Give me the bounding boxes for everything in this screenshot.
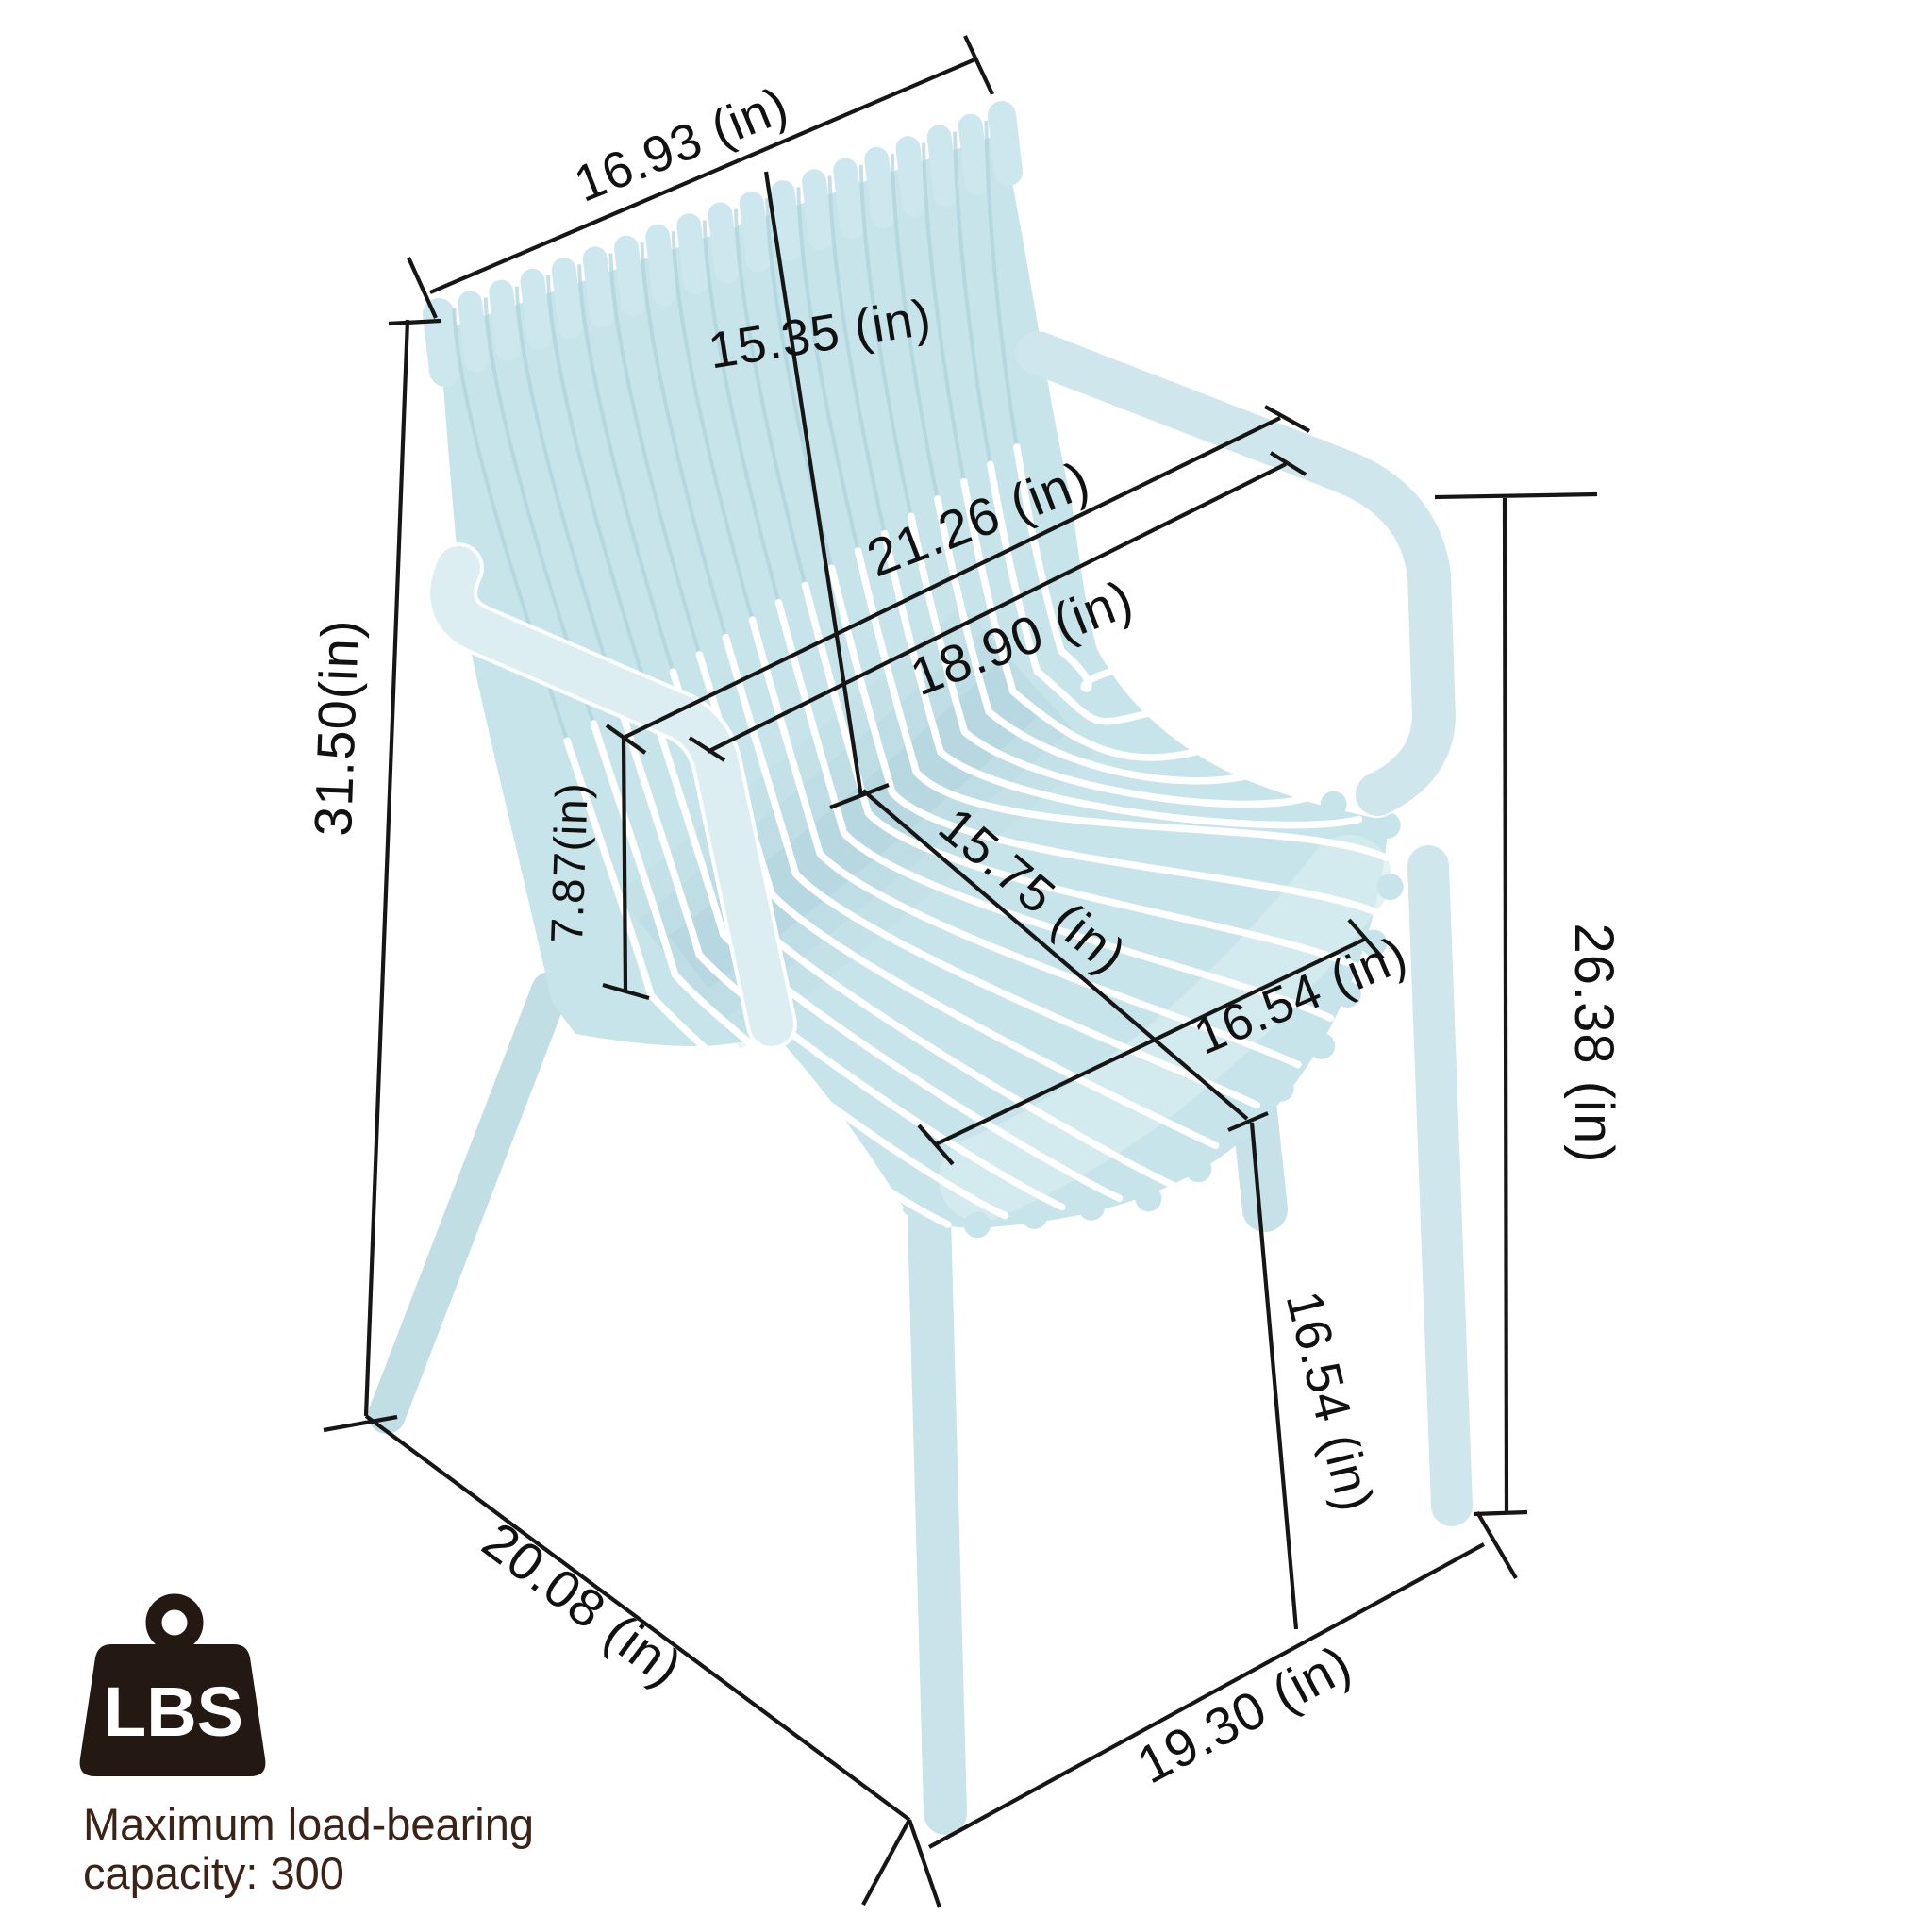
svg-text:31.50(in): 31.50(in) [303, 618, 370, 837]
svg-text:7.87(in): 7.87(in) [542, 781, 598, 943]
svg-text:LBS: LBS [104, 1673, 243, 1751]
svg-text:26.38 (in): 26.38 (in) [1563, 923, 1624, 1163]
svg-text:capacity: 300: capacity: 300 [83, 1848, 344, 1898]
svg-text:Maximum load-bearing: Maximum load-bearing [83, 1799, 534, 1849]
